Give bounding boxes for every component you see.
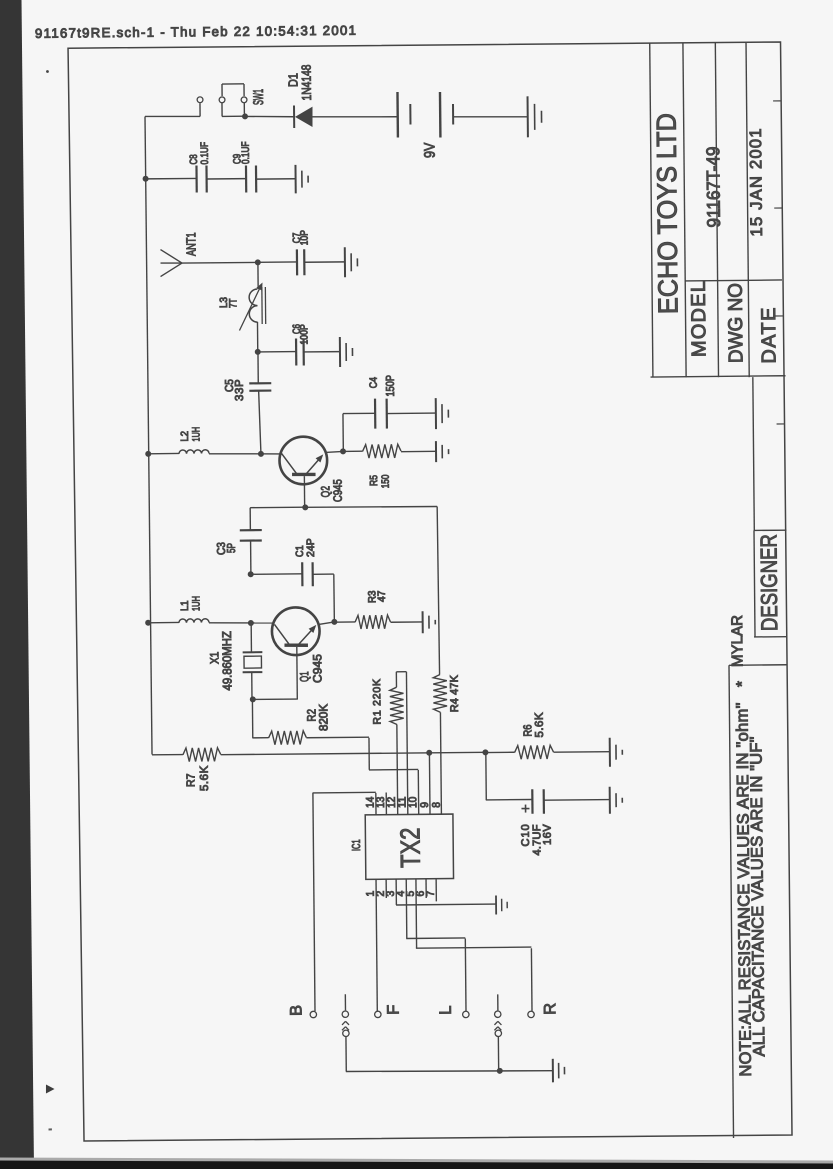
svg-text:R6: R6 [522,724,534,736]
svg-text:R1 220K: R1 220K [371,679,383,725]
svg-text:91167T-49: 91167T-49 [702,146,724,227]
svg-text:9V: 9V [421,142,438,158]
svg-text:820K: 820K [316,704,330,731]
svg-text:49.860MHZ: 49.860MHZ [220,631,235,691]
svg-text:8: 8 [431,802,443,808]
svg-text:150: 150 [380,474,392,488]
svg-text:1UH: 1UH [190,596,202,611]
svg-text:MYLAR: MYLAR [729,615,746,667]
svg-text:C945: C945 [331,479,345,502]
svg-text:9: 9 [419,802,431,808]
svg-text:1UH: 1UH [190,427,202,442]
svg-text:*: * [734,681,751,687]
svg-text:TX2: TX2 [394,827,425,868]
svg-text:C10: C10 [520,824,532,846]
svg-text:150P: 150P [385,375,397,397]
svg-text:24P: 24P [305,538,317,557]
svg-text:R: R [541,1003,559,1015]
svg-text:100P: 100P [298,324,310,344]
svg-text:MODEL: MODEL [688,281,711,357]
svg-text:F: F [385,1005,403,1015]
svg-text:C4: C4 [368,377,380,389]
svg-text:R7: R7 [185,773,197,787]
svg-text:ECHO TOYS LTD: ECHO TOYS LTD [651,113,684,314]
svg-text:B: B [287,1005,305,1016]
svg-text:Q1: Q1 [297,671,311,682]
svg-text:L: L [437,1006,455,1015]
svg-text:R4 47K: R4 47K [449,674,461,712]
svg-text:5.6K: 5.6K [199,765,211,791]
svg-text:33P: 33P [234,379,246,401]
svg-text:15 JAN 2001: 15 JAN 2001 [747,128,766,236]
svg-text:10: 10 [407,797,419,808]
svg-text:L2: L2 [179,431,191,442]
svg-text:DWG NO: DWG NO [725,283,748,363]
svg-text:C945: C945 [310,654,324,683]
svg-text:L1: L1 [179,600,191,611]
svg-text:ANT1: ANT1 [183,232,198,256]
svg-text:47: 47 [376,590,388,602]
svg-text:0.1UF: 0.1UF [240,141,252,164]
svg-text:R5: R5 [368,475,380,486]
svg-text:0.1UF: 0.1UF [199,142,211,165]
svg-text:IC1: IC1 [351,839,363,851]
svg-text:ALL CAPACITANCE VALUES ARE IN: ALL CAPACITANCE VALUES ARE IN "UF" [747,736,768,1056]
svg-text:7T: 7T [227,298,239,308]
svg-text:DESIGNER: DESIGNER [755,534,782,631]
svg-text:SW1: SW1 [250,89,266,105]
svg-text:16V: 16V [542,824,554,846]
svg-text:5P: 5P [226,543,238,553]
svg-text:5.6K: 5.6K [534,712,546,737]
svg-text:1N4148: 1N4148 [299,64,314,100]
svg-text:10P: 10P [298,230,310,245]
